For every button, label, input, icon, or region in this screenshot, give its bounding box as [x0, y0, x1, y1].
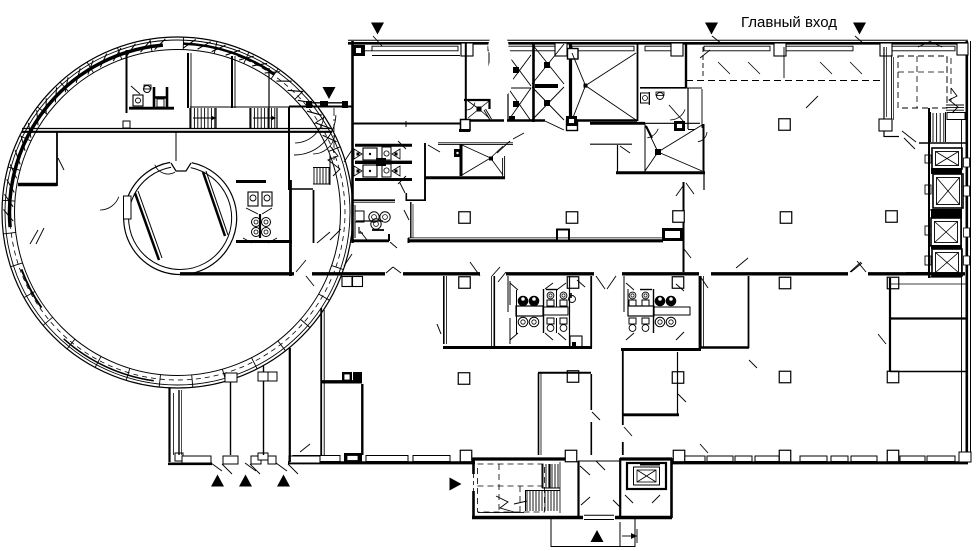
svg-text:Главный вход: Главный вход [741, 14, 837, 31]
